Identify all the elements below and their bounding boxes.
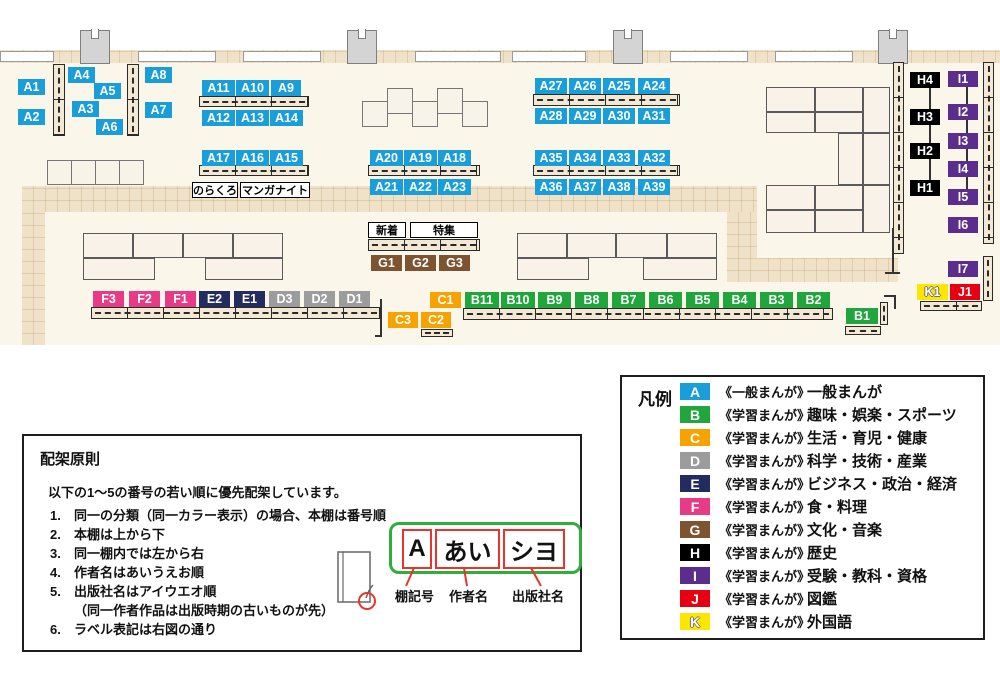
category-chip-F: F <box>680 498 710 515</box>
category-chip-C: C <box>680 429 710 446</box>
shelf-label-A24: A24 <box>638 78 670 94</box>
legend-title: 凡例 <box>638 385 672 410</box>
legend-row-J: J《学習まんが》図鑑 <box>680 590 957 607</box>
rules-intro: 以下の1～5の番号の若い順に優先配架しています。 <box>48 482 347 501</box>
legend-box: 凡例 A《一般まんが》一般まんがB《学習まんが》趣味・娯楽・スポーツC《学習まん… <box>620 375 985 640</box>
legend-category-name: 歴史 <box>807 542 837 563</box>
shelf-label-A32: A32 <box>638 150 670 166</box>
table <box>233 233 283 258</box>
table <box>815 185 863 210</box>
table <box>863 185 890 233</box>
bookshelf <box>368 239 480 251</box>
shelf-label-I2: I2 <box>948 104 978 120</box>
category-chip-J: J <box>680 590 710 607</box>
shelf-label-H4: H4 <box>910 72 940 88</box>
bookshelf <box>983 62 994 244</box>
category-chip-H: H <box>680 544 710 561</box>
shelf-label-A20: A20 <box>370 150 403 166</box>
wall-line <box>894 295 896 309</box>
legend-series: 《学習まんが》 <box>719 451 807 470</box>
legend-row-K: K《学習まんが》外国語 <box>680 613 957 630</box>
shelf-label-F3: F3 <box>93 291 124 307</box>
window <box>138 51 216 62</box>
shelf-label-B5: B5 <box>686 292 719 308</box>
label-caption: 棚記号 <box>395 586 434 605</box>
bookshelf <box>53 64 65 136</box>
legend-row-A: A《一般まんが》一般まんが <box>680 383 957 400</box>
table <box>766 210 815 233</box>
shelf-label-B6: B6 <box>649 292 682 308</box>
sign-label: 新着 <box>368 222 406 238</box>
legend-row-E: E《学習まんが》ビジネス・政治・経済 <box>680 475 957 492</box>
shelf-label-A5: A5 <box>94 83 121 99</box>
bookshelf <box>127 64 139 136</box>
shelf-label-B8: B8 <box>575 292 608 308</box>
legend-series: 《学習まんが》 <box>719 589 807 608</box>
shelving-rules-box: 配架原則 以下の1～5の番号の若い順に優先配架しています。 1.同一の分類（同一… <box>22 434 582 652</box>
shelf-label-K1: K1 <box>917 284 948 300</box>
legend-category-name: 受験・教科・資格 <box>807 565 927 586</box>
bookshelf <box>91 307 381 319</box>
table <box>863 87 890 133</box>
shelf-label-B1: B1 <box>846 308 878 324</box>
shelf-label-B4: B4 <box>723 292 756 308</box>
shelf-label-C2: C2 <box>421 312 451 328</box>
bookshelf <box>893 62 904 254</box>
category-chip-A: A <box>680 383 710 400</box>
shelf-label-J1: J1 <box>950 284 980 300</box>
floor-map-page: A1A2A4A5A3A6A8A7A11A10A9A12A13A14A17A16A… <box>0 0 1000 700</box>
label-box: A <box>402 529 432 569</box>
pillar <box>878 30 908 64</box>
table <box>766 112 815 133</box>
table <box>119 160 144 185</box>
table <box>815 112 863 133</box>
shelf-label-A13: A13 <box>236 110 269 126</box>
table <box>616 233 667 258</box>
shelf-label-B7: B7 <box>612 292 645 308</box>
bookshelf <box>368 165 480 176</box>
category-chip-D: D <box>680 452 710 469</box>
shelf-label-A14: A14 <box>270 110 303 126</box>
shelf-label-A33: A33 <box>603 150 635 166</box>
shelf-label-B2: B2 <box>797 292 830 308</box>
bookshelf <box>920 301 982 311</box>
window <box>415 51 501 62</box>
shelf-label-A9: A9 <box>271 80 301 96</box>
rule-item: 6.ラベル表記は右図の通り <box>50 620 386 639</box>
shelf-label-I1: I1 <box>948 71 978 87</box>
window <box>243 51 321 62</box>
table <box>517 233 567 258</box>
shelf-label-A27: A27 <box>535 78 567 94</box>
table <box>815 87 863 112</box>
pillar <box>347 30 377 64</box>
shelf-label-G1: G1 <box>371 255 402 271</box>
bookshelf <box>199 165 309 176</box>
legend-row-B: B《学習まんが》趣味・娯楽・スポーツ <box>680 406 957 423</box>
shelf-label-A34: A34 <box>569 150 601 166</box>
pillar <box>613 30 643 64</box>
shelf-label-H3: H3 <box>910 109 940 125</box>
shelf-label-A23: A23 <box>438 179 471 195</box>
shelf-label-A16: A16 <box>236 150 269 166</box>
table <box>412 101 438 127</box>
bookshelf <box>533 94 680 106</box>
shelf-label-A3: A3 <box>72 101 99 117</box>
aisle <box>757 258 898 282</box>
shelf-label-B9: B9 <box>538 292 571 308</box>
shelf-label-A19: A19 <box>404 150 437 166</box>
wall-line <box>885 272 900 274</box>
table <box>643 258 717 280</box>
legend-row-I: I《学習まんが》受験・教科・資格 <box>680 567 957 584</box>
shelf-label-A4: A4 <box>68 67 95 83</box>
legend-series: 《学習まんが》 <box>719 474 807 493</box>
wall-line <box>380 299 382 337</box>
legend-series: 《学習まんが》 <box>719 612 807 631</box>
legend-series: 《学習まんが》 <box>719 543 807 562</box>
table <box>71 160 96 185</box>
legend-rows: A《一般まんが》一般まんがB《学習まんが》趣味・娯楽・スポーツC《学習まんが》生… <box>680 383 957 630</box>
bookshelf <box>421 329 453 337</box>
shelf-label-A6: A6 <box>96 119 123 135</box>
legend-category-name: 外国語 <box>807 611 852 632</box>
shelf-label-A39: A39 <box>638 179 670 195</box>
shelf-label-A10: A10 <box>236 80 269 96</box>
rules-title: 配架原則 <box>40 448 100 469</box>
shelf-label-D2: D2 <box>304 291 335 307</box>
rule-item: 1.同一の分類（同一カラー表示）の場合、本棚は番号順 <box>50 506 386 525</box>
table <box>205 258 283 280</box>
shelf-label-A35: A35 <box>535 150 567 166</box>
legend-series: 《学習まんが》 <box>719 428 807 447</box>
shelf-label-H1: H1 <box>910 180 940 196</box>
table <box>462 101 488 127</box>
shelf-label-A8: A8 <box>145 67 172 83</box>
legend-category-name: 一般まんが <box>807 381 882 402</box>
label-box: シヨ <box>503 529 565 569</box>
shelf-label-E2: E2 <box>199 291 230 307</box>
shelf-label-I7: I7 <box>948 261 978 277</box>
legend-row-D: D《学習まんが》科学・技術・産業 <box>680 452 957 469</box>
shelf-label-A12: A12 <box>202 110 235 126</box>
window <box>775 51 853 62</box>
category-chip-B: B <box>680 406 710 423</box>
legend-row-H: H《学習まんが》歴史 <box>680 544 957 561</box>
window <box>670 51 748 62</box>
shelf-label-A37: A37 <box>569 179 601 195</box>
shelf-label-A7: A7 <box>145 102 172 118</box>
shelf-label-I4: I4 <box>948 161 978 177</box>
legend-category-name: 趣味・娯楽・スポーツ <box>807 404 957 425</box>
shelf-label-F1: F1 <box>165 291 196 307</box>
shelf-label-A21: A21 <box>370 179 403 195</box>
shelf-label-B3: B3 <box>760 292 793 308</box>
shelf-label-I6: I6 <box>948 217 978 233</box>
shelf-label-E1: E1 <box>234 291 265 307</box>
shelf-label-A28: A28 <box>535 108 567 124</box>
bookshelf <box>880 302 888 325</box>
table <box>83 233 133 258</box>
bookshelf <box>463 308 833 320</box>
table <box>83 258 155 280</box>
shelf-label-I3: I3 <box>948 133 978 149</box>
shelf-label-H2: H2 <box>910 143 940 159</box>
table <box>863 133 890 185</box>
shelf-label-A11: A11 <box>202 80 235 96</box>
category-chip-E: E <box>680 475 710 492</box>
legend-row-F: F《学習まんが》食・料理 <box>680 498 957 515</box>
shelf-label-D1: D1 <box>339 291 370 307</box>
shelf-label-A31: A31 <box>638 108 670 124</box>
shelf-label-C1: C1 <box>430 292 461 308</box>
shelf-label-C3: C3 <box>388 312 418 328</box>
rule-item: 2.本棚は上から下 <box>50 525 386 544</box>
table <box>567 233 616 258</box>
shelf-label-A1: A1 <box>18 79 45 95</box>
shelf-label-A18: A18 <box>438 150 471 166</box>
category-chip-K: K <box>680 613 710 630</box>
wall-line <box>375 335 382 337</box>
aisle <box>727 212 757 282</box>
shelf-label-G3: G3 <box>439 255 470 271</box>
legend-category-name: 生活・育児・健康 <box>807 427 927 448</box>
shelf-label-A15: A15 <box>270 150 303 166</box>
shelf-label-B11: B11 <box>465 292 499 308</box>
shelf-label-A2: A2 <box>18 109 45 125</box>
bookshelf <box>199 96 309 107</box>
table <box>766 185 815 210</box>
shelf-label-A29: A29 <box>569 108 601 124</box>
shelf-label-B10: B10 <box>501 292 535 308</box>
shelf-label-A30: A30 <box>603 108 635 124</box>
legend-series: 《学習まんが》 <box>719 497 807 516</box>
bookshelf <box>533 165 680 176</box>
legend-series: 《学習まんが》 <box>719 566 807 585</box>
table <box>183 233 233 258</box>
table <box>517 258 589 280</box>
table <box>362 101 388 127</box>
legend-row-G: G《学習まんが》文化・音楽 <box>680 521 957 538</box>
sign-label: マンガナイト <box>240 182 310 198</box>
shelf-label-I5: I5 <box>948 189 978 205</box>
shelf-label-A38: A38 <box>603 179 635 195</box>
window <box>0 51 54 62</box>
category-chip-I: I <box>680 567 710 584</box>
table <box>838 133 863 185</box>
table <box>766 87 815 112</box>
wall-line <box>929 84 931 188</box>
legend-row-C: C《学習まんが》生活・育児・健康 <box>680 429 957 446</box>
legend-category-name: 文化・音楽 <box>807 519 882 540</box>
table <box>47 160 72 185</box>
shelf-label-A17: A17 <box>202 150 235 166</box>
book-icon <box>326 546 382 616</box>
legend-category-name: ビジネス・政治・経済 <box>807 473 957 494</box>
label-diagram-frame: Aあいシヨ <box>389 522 582 574</box>
table <box>95 160 120 185</box>
table <box>437 88 463 114</box>
legend-category-name: 図鑑 <box>807 588 837 609</box>
shelf-label-A26: A26 <box>569 78 601 94</box>
table <box>815 210 863 233</box>
shelf-label-A22: A22 <box>404 179 437 195</box>
legend-series: 《学習まんが》 <box>719 405 807 424</box>
shelf-label-D3: D3 <box>269 291 300 307</box>
label-box: あい <box>435 529 500 569</box>
table <box>133 233 183 258</box>
sign-label: のらくろ <box>192 182 238 198</box>
category-chip-G: G <box>680 521 710 538</box>
wall-line <box>892 228 894 274</box>
bookshelf <box>845 326 881 335</box>
shelf-label-G2: G2 <box>405 255 436 271</box>
pillar <box>80 30 110 64</box>
label-caption: 出版社名 <box>512 586 564 605</box>
shelf-label-A25: A25 <box>603 78 635 94</box>
legend-series: 《学習まんが》 <box>719 520 807 539</box>
aisle <box>22 212 45 345</box>
legend-category-name: 食・料理 <box>807 496 867 517</box>
legend-category-name: 科学・技術・産業 <box>807 450 927 471</box>
table <box>667 233 717 258</box>
shelf-label-A36: A36 <box>535 179 567 195</box>
label-caption: 作者名 <box>449 586 488 605</box>
shelf-label-F2: F2 <box>129 291 160 307</box>
bookshelf <box>983 256 993 301</box>
window <box>512 51 586 62</box>
legend-series: 《一般まんが》 <box>719 382 807 401</box>
table <box>387 88 413 114</box>
sign-label: 特集 <box>410 222 478 238</box>
